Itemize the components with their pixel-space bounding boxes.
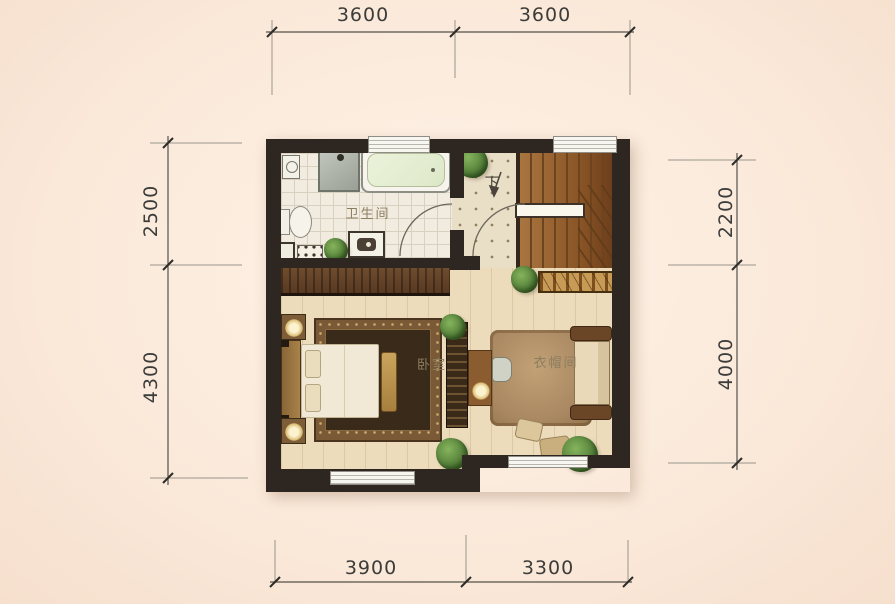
wall-left [266,139,281,492]
wall-bathroom-hall-upper [450,153,464,198]
corner-basin [282,155,300,179]
bed-end-bench [381,352,397,412]
bed-pillow [305,350,321,378]
nightstand-bottom [281,418,306,444]
toilet [280,206,313,238]
window-top-stairs [553,136,617,153]
dim-top-left: 3600 [313,4,413,28]
cloakroom-wardrobe [538,271,618,293]
dim-bottom-right: 3300 [498,557,598,581]
table-lamp [285,319,303,337]
floor-plan-page: 卫生间 下 卧室 衣帽间 3600 3600 3900 3300 2500 43… [0,0,895,604]
window-bottom-cloakroom [508,456,588,468]
toilet-bowl [289,206,312,238]
desk-chair [492,357,512,382]
vanity-sink [348,231,385,258]
cloakroom-label: 衣帽间 [516,352,596,371]
potted-plant-screen [440,314,466,340]
dim-top-right: 3600 [495,4,595,28]
stair-winders [578,185,612,268]
nightstand-top [281,314,306,340]
dim-left-upper: 2500 [140,181,164,241]
table-lamp [285,423,303,441]
dim-left-lower: 4300 [140,347,164,407]
desk-lamp [472,382,490,400]
dim-right-upper: 2200 [715,182,739,242]
window-bottom-bedroom [330,471,415,485]
window-top-bathroom [368,136,430,153]
bed-pillow [305,384,321,412]
potted-plant-wardrobe [511,266,538,293]
bathroom-label: 卫生间 [320,203,416,222]
dim-right-lower: 4000 [715,334,739,394]
shower [318,149,360,192]
bathtub [361,147,451,193]
sofa-armrest [570,405,612,420]
bed-headboard [281,340,301,422]
wall-bathroom-bottom [281,258,454,268]
stairs-down-label: 下 [480,172,504,193]
sofa [570,326,612,420]
sofa-armrest [570,326,612,341]
dim-bottom-left: 3900 [321,557,421,581]
bathtub-basin [367,153,445,187]
sofa-seat [574,341,610,405]
wall-right [612,139,630,468]
stair-handrail [515,203,585,218]
bedroom-label: 卧室 [402,354,462,373]
wall-landing-stub [450,256,480,270]
bedroom-wardrobe [281,268,450,296]
